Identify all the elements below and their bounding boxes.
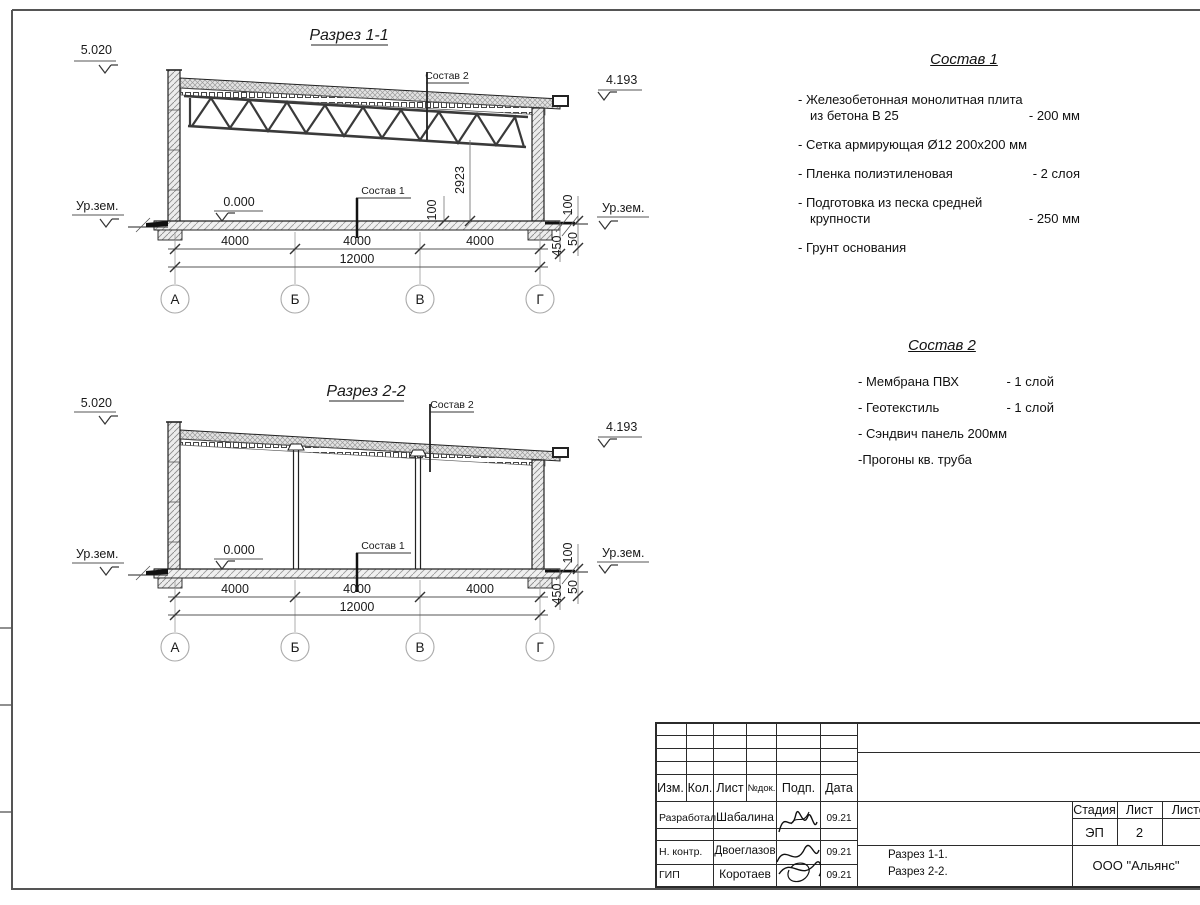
note-item: - Грунт основания	[798, 240, 1080, 256]
tb-role: ГИП	[659, 865, 715, 885]
dim-chain: 4000 4000 4000 12000	[168, 580, 548, 632]
svg-text:450: 450	[550, 584, 564, 605]
ground-level-right: Ур.зем.	[597, 546, 649, 573]
tb-header-kol: Кол.	[687, 775, 713, 801]
svg-text:Б: Б	[291, 292, 300, 307]
note-text: - Подготовка из песка средней	[798, 195, 1080, 211]
tb-role: Н. контр.	[659, 842, 715, 862]
svg-text:А: А	[170, 292, 179, 307]
tb-header-ndok: №док.	[747, 775, 776, 801]
svg-text:2923: 2923	[453, 166, 467, 194]
tb-stage-value: ЭП	[1072, 820, 1117, 844]
svg-text:Г: Г	[536, 292, 544, 307]
svg-text:12000: 12000	[340, 252, 375, 266]
svg-text:5.020: 5.020	[81, 43, 112, 57]
note-item: - Сэндвич панель 200мм	[858, 426, 1054, 442]
elevation-top-right: 4.193	[598, 420, 642, 447]
section2-title: Разрез 2-2	[326, 383, 405, 400]
svg-text:50: 50	[566, 232, 580, 246]
tb-doc-title-1: Разрез 1-1.	[888, 847, 1048, 863]
note-text: - Сэндвич панель 200мм	[858, 426, 1054, 442]
svg-text:4000: 4000	[221, 582, 249, 596]
notes-sostav1: Состав 1 - Железобетонная монолитная пли…	[798, 52, 1080, 269]
svg-text:4.193: 4.193	[606, 73, 637, 87]
svg-text:4000: 4000	[343, 582, 371, 596]
svg-text:Состав 2: Состав 2	[425, 70, 469, 82]
note-text: - Пленка полиэтиленовая	[798, 166, 953, 182]
svg-text:В: В	[415, 640, 424, 655]
svg-text:450: 450	[550, 236, 564, 257]
roof-edge-beam	[553, 96, 568, 106]
note-text: - Грунт основания	[798, 240, 1080, 256]
tb-doc-title-2: Разрез 2-2.	[888, 864, 1048, 880]
svg-text:Состав 2: Состав 2	[430, 399, 474, 411]
note-value: - 2 слоя	[1033, 166, 1080, 182]
svg-text:0.000: 0.000	[223, 543, 254, 557]
svg-text:4000: 4000	[221, 234, 249, 248]
svg-text:0.000: 0.000	[223, 195, 254, 209]
svg-text:Г: Г	[536, 640, 544, 655]
svg-text:4000: 4000	[466, 582, 494, 596]
note-item: - Железобетонная монолитная плита из бет…	[798, 92, 1080, 124]
ground-level-left: Ур.зем.	[72, 199, 124, 227]
note-text: - Мембрана ПВХ	[858, 374, 959, 390]
note-text: - Сетка армирующая Ø12 200х200 мм	[798, 137, 1080, 153]
svg-text:5.020: 5.020	[81, 396, 112, 410]
axis-bubbles: А Б В Г	[161, 285, 554, 313]
axis-bubbles: А Б В Г	[161, 633, 554, 661]
note-value: - 200 мм	[1029, 108, 1080, 124]
note-text: крупности	[798, 211, 870, 227]
tb-header-podp: Подп.	[777, 775, 820, 801]
column-middle-b	[288, 444, 304, 570]
column-right	[532, 108, 544, 221]
signature	[775, 802, 819, 840]
note-text: - Железобетонная монолитная плита	[798, 92, 1080, 108]
svg-text:А: А	[170, 640, 179, 655]
column-left	[166, 70, 182, 222]
notes-sostav2: Состав 2 - Мембрана ПВХ- 1 слой - Геотек…	[858, 338, 1054, 478]
title-block: Изм. Кол. Лист №док. Подп. Дата Разработ…	[655, 722, 1200, 888]
dim-chain: 4000 4000 4000 12000	[168, 232, 548, 284]
note-item: - Геотекстиль- 1 слой	[858, 400, 1054, 416]
note-value: - 1 слой	[1006, 400, 1054, 416]
svg-text:50: 50	[566, 580, 580, 594]
note-text: -Прогоны кв. труба	[858, 452, 1054, 468]
tb-date: 09.21	[821, 809, 857, 827]
ground-level-left: Ур.зем.	[72, 547, 124, 575]
section-2-2: Разрез 2-2	[72, 383, 649, 661]
elevation-top-right: 4.193	[598, 73, 642, 100]
svg-text:Состав 1: Состав 1	[361, 185, 405, 197]
tb-header-izm: Изм.	[656, 775, 685, 801]
svg-text:Ур.зем.: Ур.зем.	[602, 546, 644, 560]
tb-date: 09.21	[821, 866, 857, 884]
svg-text:В: В	[415, 292, 424, 307]
tb-name: Шабалина	[714, 807, 776, 827]
tb-listov-label: Листов	[1162, 802, 1200, 818]
svg-text:100: 100	[561, 195, 575, 216]
drawing-sheet: Разрез 1-1	[0, 0, 1200, 900]
tb-name: Коротаев	[714, 864, 776, 884]
note-item: - Сетка армирующая Ø12 200х200 мм	[798, 137, 1080, 153]
tb-role: Разработал	[659, 808, 715, 828]
elevation-top-left: 5.020	[74, 43, 118, 73]
svg-text:Состав 1: Состав 1	[361, 540, 405, 552]
note-item: -Прогоны кв. труба	[858, 452, 1054, 468]
elevation-top-left: 5.020	[74, 396, 118, 424]
note-value: - 250 мм	[1029, 211, 1080, 227]
tb-sheet-number: 2	[1117, 820, 1162, 844]
svg-text:Ур.зем.: Ур.зем.	[76, 199, 118, 213]
svg-text:4.193: 4.193	[606, 420, 637, 434]
column-middle-v	[410, 450, 426, 570]
svg-text:4000: 4000	[343, 234, 371, 248]
tb-date: 09.21	[821, 843, 857, 861]
svg-text:4000: 4000	[466, 234, 494, 248]
column-left	[166, 422, 182, 572]
svg-text:Б: Б	[291, 640, 300, 655]
elevation-zero: 0.000	[214, 195, 263, 221]
note-item: - Мембрана ПВХ- 1 слой	[858, 374, 1054, 390]
note-item: - Пленка полиэтиленовая- 2 слоя	[798, 166, 1080, 182]
roof-edge-beam	[553, 448, 568, 457]
section1-title: Разрез 1-1	[309, 27, 388, 44]
dim-2923: 2923	[453, 140, 475, 226]
section-1-1: Разрез 1-1	[72, 27, 649, 313]
elevation-zero: 0.000	[214, 543, 263, 569]
tb-header-list: Лист	[714, 775, 746, 801]
note-text: из бетона В 25	[798, 108, 899, 124]
svg-text:100: 100	[561, 543, 575, 564]
notes-sostav1-title: Состав 1	[848, 52, 1080, 68]
svg-text:100: 100	[425, 200, 439, 221]
tb-company: ООО "Альянс"	[1072, 853, 1200, 877]
ground-level-right: Ур.зем.	[597, 201, 649, 229]
signature	[771, 840, 821, 886]
note-value: - 1 слой	[1006, 374, 1054, 390]
tb-stage-label: Стадия	[1072, 802, 1117, 818]
notes-sostav2-title: Состав 2	[830, 338, 1054, 354]
note-item: - Подготовка из песка средней крупности-…	[798, 195, 1080, 227]
tb-header-data: Дата	[821, 775, 857, 801]
tb-list-label: Лист	[1117, 802, 1162, 818]
tb-name: Двоеглазов	[714, 841, 776, 861]
svg-text:Ур.зем.: Ур.зем.	[602, 201, 644, 215]
note-text: - Геотекстиль	[858, 400, 939, 416]
svg-text:Ур.зем.: Ур.зем.	[76, 547, 118, 561]
column-right	[532, 460, 544, 571]
svg-text:12000: 12000	[340, 600, 375, 614]
